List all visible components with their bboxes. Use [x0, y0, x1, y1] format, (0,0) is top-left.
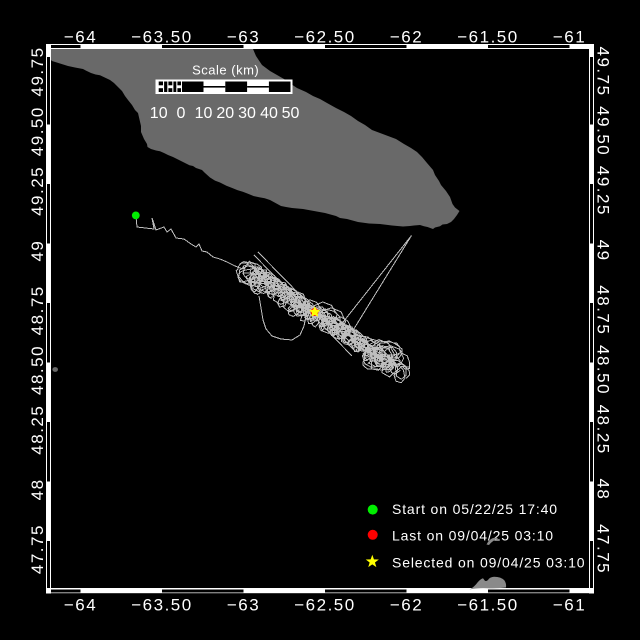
svg-text:49.25: 49.25 — [594, 166, 613, 216]
svg-text:48.50: 48.50 — [594, 345, 613, 395]
svg-text:−61: −61 — [553, 596, 586, 615]
svg-text:49.75: 49.75 — [594, 46, 613, 96]
svg-text:−62.50: −62.50 — [294, 28, 355, 47]
svg-text:−61.50: −61.50 — [457, 596, 518, 615]
svg-text:0: 0 — [177, 105, 186, 122]
svg-text:49: 49 — [28, 240, 47, 262]
svg-text:−64: −64 — [64, 28, 97, 47]
svg-text:−61: −61 — [553, 28, 586, 47]
svg-text:48: 48 — [28, 478, 47, 500]
svg-text:48.75: 48.75 — [594, 285, 613, 335]
svg-text:48.25: 48.25 — [28, 405, 47, 455]
svg-text:10: 10 — [195, 105, 213, 122]
svg-text:47.75: 47.75 — [594, 524, 613, 574]
svg-text:−63: −63 — [227, 28, 260, 47]
svg-text:49: 49 — [594, 240, 613, 262]
svg-text:−64: −64 — [64, 596, 97, 615]
svg-text:40: 40 — [260, 105, 278, 122]
svg-text:−62: −62 — [390, 28, 423, 47]
svg-text:−62.50: −62.50 — [294, 596, 355, 615]
svg-text:−62: −62 — [390, 596, 423, 615]
svg-text:49.50: 49.50 — [594, 106, 613, 156]
svg-text:48: 48 — [594, 478, 613, 500]
svg-text:50: 50 — [282, 105, 300, 122]
svg-text:Last on 09/04/25 03:10: Last on 09/04/25 03:10 — [392, 528, 554, 544]
svg-text:−63: −63 — [227, 596, 260, 615]
svg-text:−63.50: −63.50 — [131, 28, 192, 47]
svg-text:−63.50: −63.50 — [131, 596, 192, 615]
svg-text:48.75: 48.75 — [28, 285, 47, 335]
svg-text:−61.50: −61.50 — [457, 28, 518, 47]
svg-text:49.25: 49.25 — [28, 166, 47, 216]
svg-text:Selected on 09/04/25 03:10: Selected on 09/04/25 03:10 — [392, 555, 585, 571]
svg-text:49.50: 49.50 — [28, 106, 47, 156]
svg-text:48.50: 48.50 — [28, 345, 47, 395]
svg-text:20: 20 — [216, 105, 234, 122]
svg-text:30: 30 — [238, 105, 256, 122]
svg-text:48.25: 48.25 — [594, 405, 613, 455]
svg-text:Scale (km): Scale (km) — [192, 63, 259, 78]
svg-text:10: 10 — [150, 105, 168, 122]
svg-text:49.75: 49.75 — [28, 46, 47, 96]
svg-text:47.75: 47.75 — [28, 524, 47, 574]
svg-text:Start on 05/22/25 17:40: Start on 05/22/25 17:40 — [392, 501, 558, 517]
